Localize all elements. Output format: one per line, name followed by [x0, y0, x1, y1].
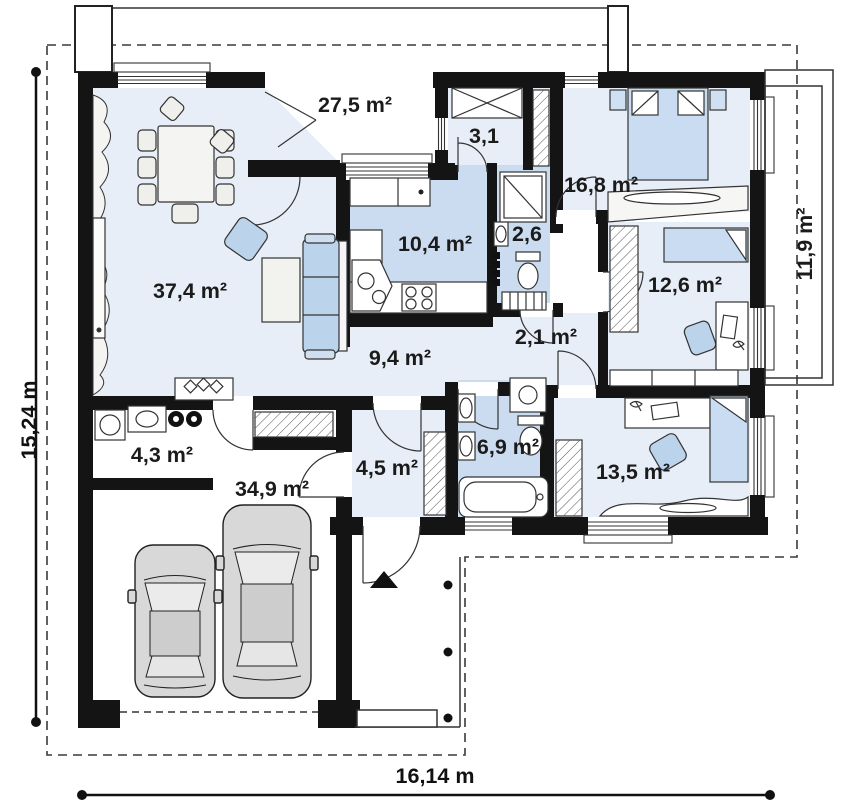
window-pantry [435, 118, 448, 150]
laundry-sink [128, 406, 166, 432]
label-kitchen: 10,4 m² [398, 232, 472, 256]
hob-rings [168, 411, 202, 427]
label-living-room: 37,4 m² [153, 279, 227, 303]
window-bedroom-right [750, 306, 774, 370]
shower [500, 172, 546, 222]
label-wc: 2,6 [512, 222, 542, 246]
porch-step [357, 710, 437, 727]
label-bedroom-main: 16,8 m² [564, 173, 638, 197]
dining-table [158, 126, 214, 202]
porch-column [444, 648, 453, 657]
label-corridor: 2,1 m² [515, 325, 577, 349]
laptop [651, 402, 679, 419]
sofa [303, 234, 347, 359]
window-bedroom-main [750, 97, 774, 173]
window-living-top [114, 63, 210, 88]
laundry-furniture [95, 406, 333, 440]
label-entry: 4,5 m² [356, 456, 418, 480]
washing-machine [95, 410, 125, 440]
porch-column [444, 714, 453, 723]
label-terrace-top: 27,5 m² [318, 93, 392, 117]
floor-plan: 27,5 m² 3,1 16,8 m² 2,6 10,4 m² 37,4 m² … [0, 0, 850, 804]
label-height-dimension: 15,24 m [17, 381, 41, 460]
window-bedroom-bottom-south [584, 517, 672, 543]
car-small [128, 545, 222, 697]
nightstand [610, 90, 626, 110]
label-laundry: 4,3 m² [131, 443, 193, 467]
label-bathroom: 6,9 m² [477, 435, 539, 459]
label-width-dimension: 16,14 m [396, 764, 475, 788]
window-top-mid [565, 72, 598, 88]
towel-radiator [502, 292, 546, 310]
laundry-door [213, 410, 253, 450]
tv-unit [93, 218, 105, 338]
kitchen-top-counter [350, 178, 430, 206]
porch-column [444, 581, 453, 590]
label-pantry: 3,1 [469, 124, 499, 148]
label-bedroom-bottom: 13,5 m² [596, 460, 670, 484]
hob [402, 284, 436, 311]
toilet [516, 252, 540, 289]
cabinet-row [610, 370, 738, 386]
window-bathroom-south [465, 517, 512, 535]
garage [120, 505, 318, 712]
nightstand [710, 90, 726, 110]
label-hall: 9,4 m² [369, 346, 431, 370]
laptop [721, 315, 738, 339]
label-terrace-right: 11,9 m² [793, 208, 817, 281]
label-bedroom-right: 12,6 m² [648, 273, 722, 297]
coffee-table [262, 258, 300, 322]
floor-plan-drawing: 27,5 m² 3,1 16,8 m² 2,6 10,4 m² 37,4 m² … [0, 0, 850, 804]
entry-furniture [424, 432, 446, 515]
window-bedroom-bottom-right [750, 416, 774, 497]
chimney [75, 6, 628, 72]
fireplace [175, 378, 233, 400]
label-garage: 34,9 m² [235, 477, 309, 501]
window-kitchen-terrace [342, 154, 432, 180]
car-large [216, 505, 318, 698]
washing-machine [510, 378, 546, 412]
bathtub [459, 477, 548, 517]
